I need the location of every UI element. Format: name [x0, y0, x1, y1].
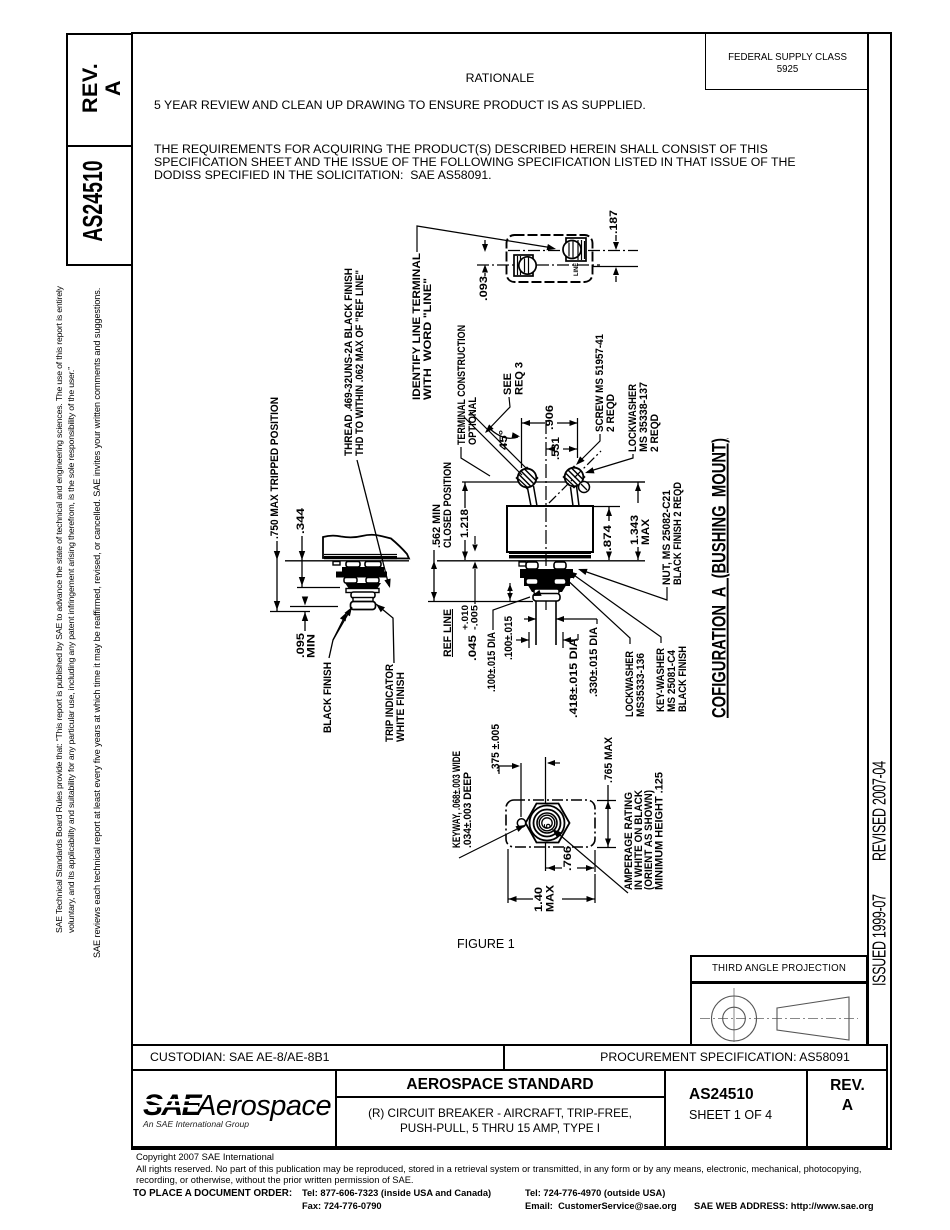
- svg-text:-.005: -.005: [469, 604, 480, 630]
- svg-text:1.218: 1.218: [459, 509, 471, 538]
- svg-text:5: 5: [542, 823, 552, 828]
- svg-text:.034±.003 DEEP: .034±.003 DEEP: [462, 772, 474, 848]
- svg-text:WITH WORD "LINE": WITH WORD "LINE": [422, 278, 434, 400]
- svg-text:.874: .874: [602, 524, 614, 551]
- svg-text:COFIGURATION A (BUSHING MOU: COFIGURATION A (BUSHING MOUNT): [710, 438, 731, 718]
- svg-text:.100±.015: .100±.015: [503, 616, 515, 660]
- svg-text:LINE: LINE: [573, 262, 580, 276]
- svg-text:.418±.015 DIA: .418±.015 DIA: [568, 638, 580, 718]
- svg-text:45°: 45°: [498, 430, 510, 450]
- svg-text:SEE: SEE: [502, 373, 514, 395]
- svg-text:MIN: MIN: [305, 634, 317, 658]
- svg-text:REF LINE: REF LINE: [442, 609, 454, 657]
- svg-text:.906: .906: [544, 405, 556, 430]
- svg-text:CLOSED POSITION: CLOSED POSITION: [442, 462, 454, 548]
- svg-text:.187: .187: [608, 210, 620, 234]
- svg-text:OPTIONAL: OPTIONAL: [467, 397, 479, 445]
- svg-text:MAX: MAX: [544, 884, 556, 912]
- svg-text:MAX: MAX: [640, 518, 652, 545]
- svg-text:BLACK FINISH 2 REQD: BLACK FINISH 2 REQD: [672, 482, 684, 585]
- svg-text:.100±.015 DIA: .100±.015 DIA: [486, 632, 498, 692]
- svg-text:BLACK FINISH: BLACK FINISH: [322, 662, 334, 733]
- svg-text:.344: .344: [295, 507, 307, 534]
- svg-text:Aerospace: Aerospace: [195, 1090, 332, 1122]
- svg-text:REQ 3: REQ 3: [513, 362, 525, 395]
- svg-text:1.40: 1.40: [533, 887, 545, 912]
- svg-text:BLACK FINISH: BLACK FINISH: [677, 646, 689, 712]
- svg-text:MS35333-136: MS35333-136: [635, 653, 647, 717]
- svg-text:.045: .045: [467, 635, 479, 661]
- svg-text:THD TO WITHIN .062 MAX OF "REF: THD TO WITHIN .062 MAX OF "REF LINE": [354, 270, 366, 456]
- svg-text:.093: .093: [478, 276, 490, 301]
- svg-text:.750 MAX TRIPPED POSITION: .750 MAX TRIPPED POSITION: [269, 397, 281, 539]
- svg-text:.375 ±.005: .375 ±.005: [490, 724, 502, 772]
- svg-text:.766: .766: [562, 846, 574, 871]
- svg-text:2 REQD: 2 REQD: [649, 414, 661, 452]
- svg-text:MINIMUM HEIGHT .125: MINIMUM HEIGHT .125: [653, 772, 665, 890]
- svg-text:.330±.015 DIA: .330±.015 DIA: [588, 627, 600, 697]
- svg-text:.765 MAX: .765 MAX: [603, 736, 615, 783]
- svg-text:WHITE FINISH: WHITE FINISH: [395, 672, 407, 742]
- svg-text:2 REQD: 2 REQD: [605, 394, 617, 432]
